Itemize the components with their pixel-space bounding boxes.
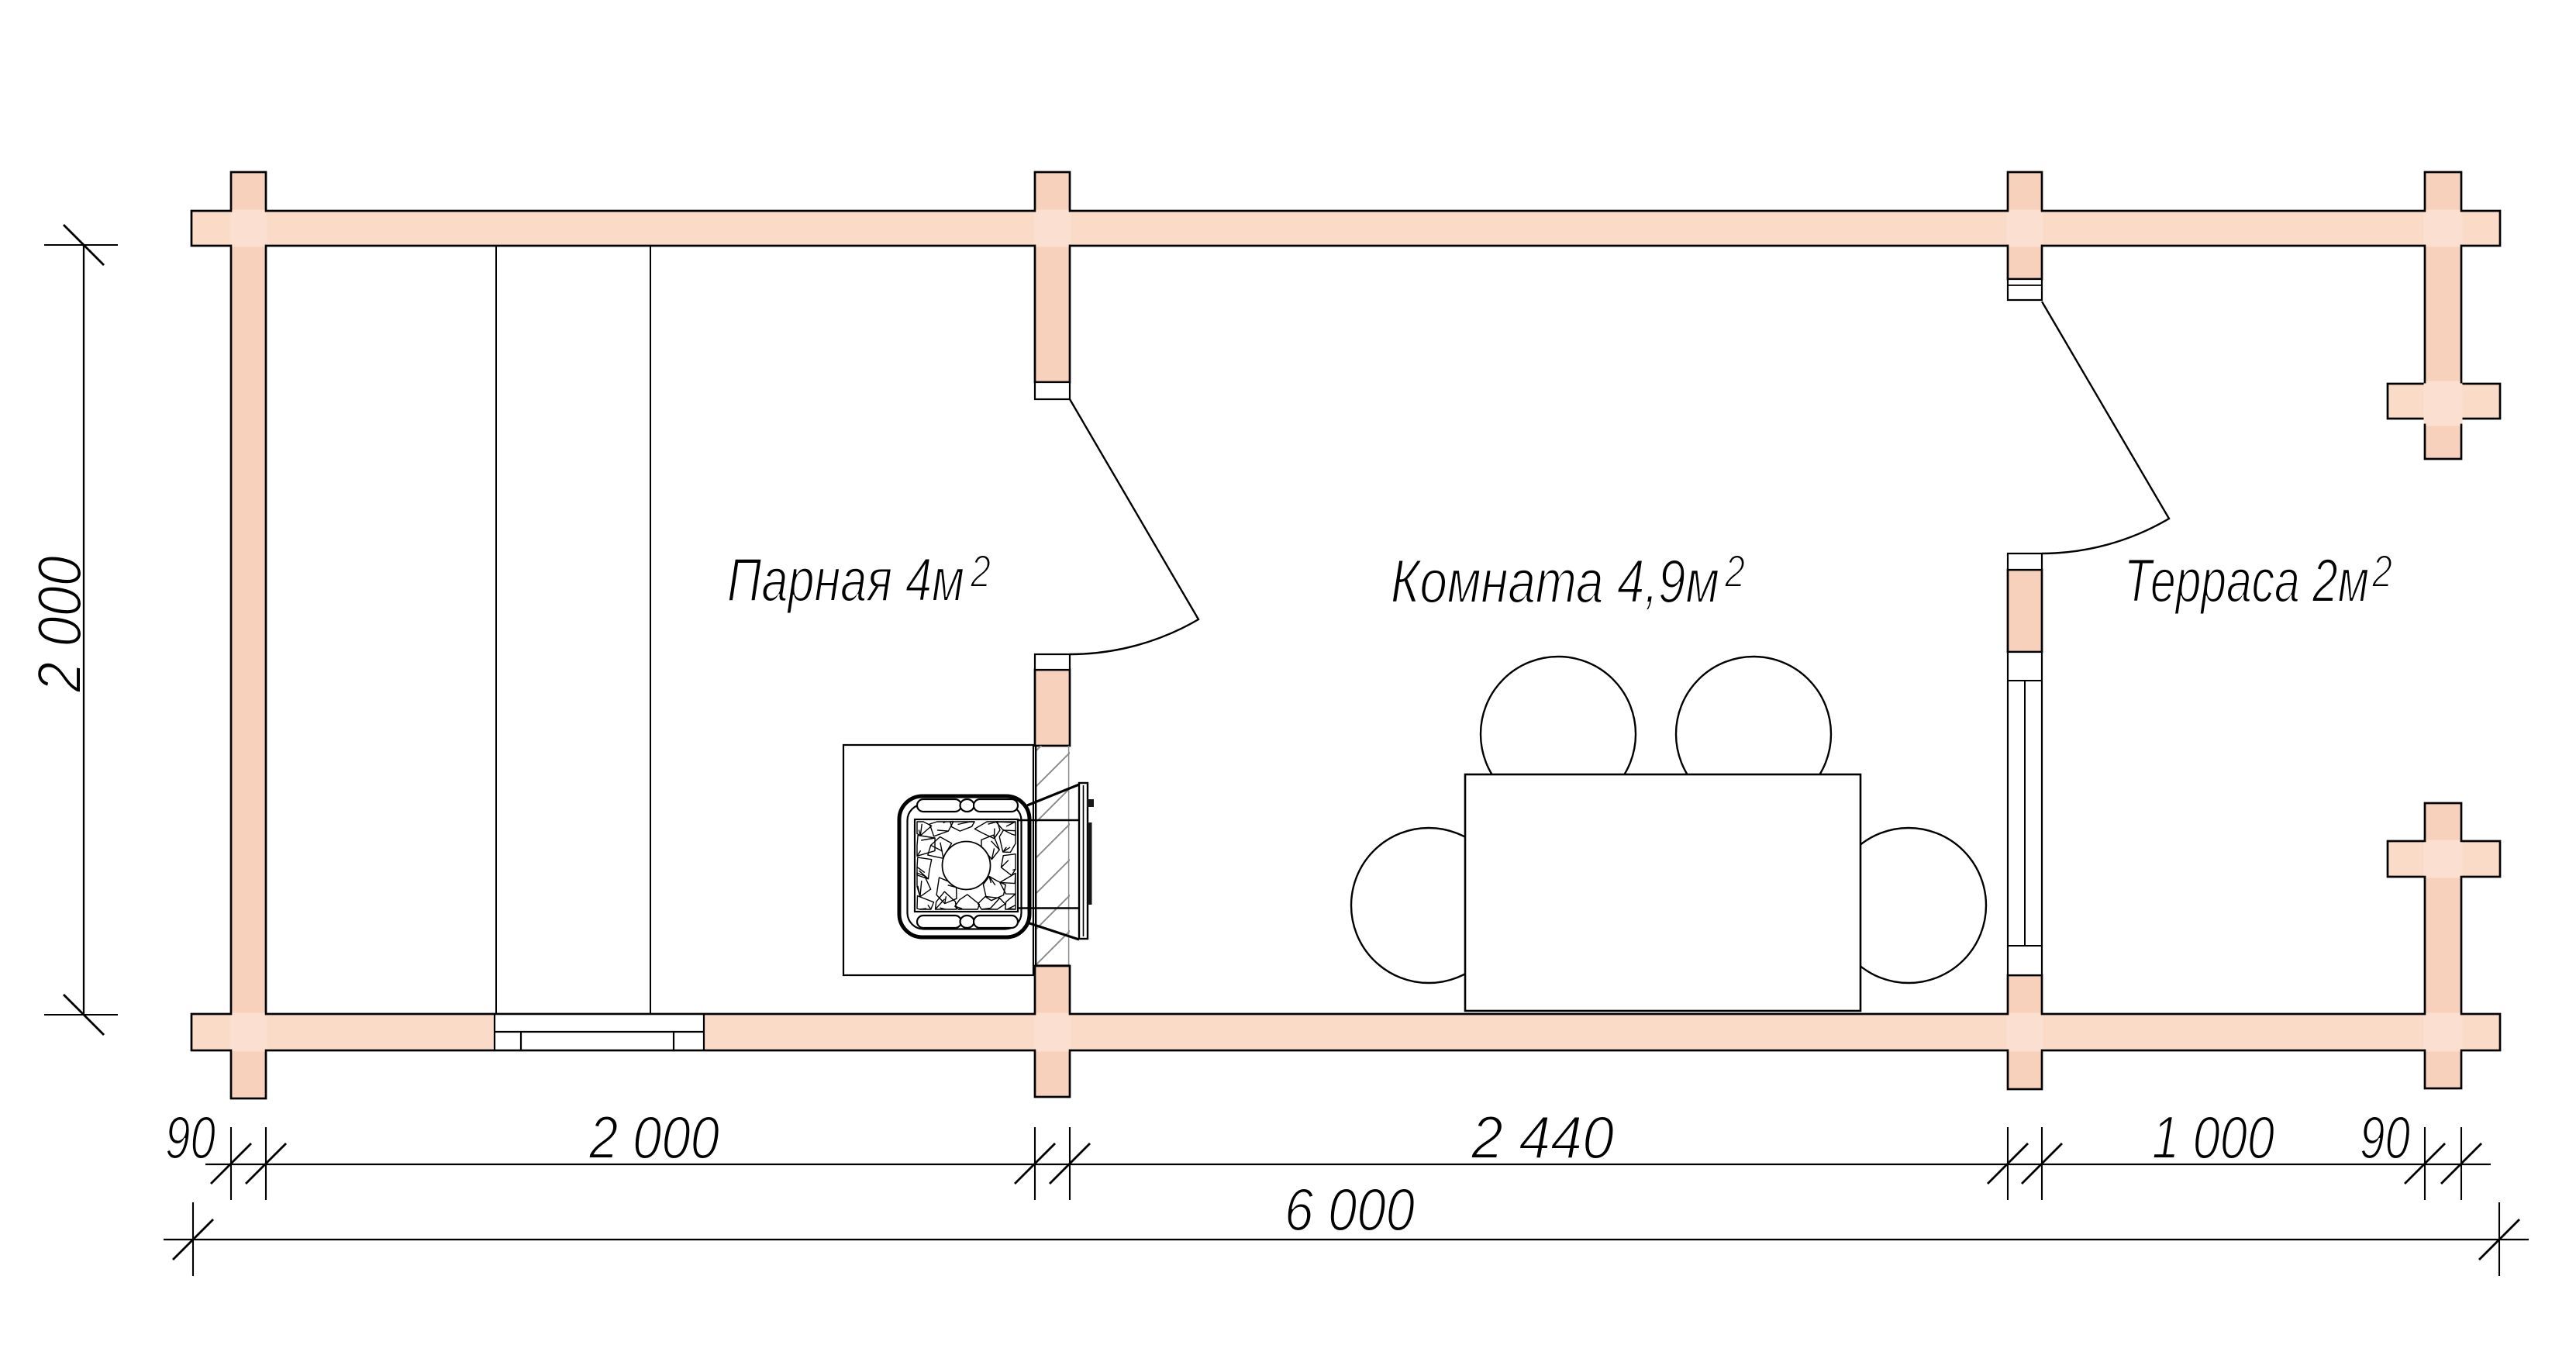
svg-text:6 000: 6 000 (1285, 1175, 1415, 1243)
svg-text:2: 2 (2371, 547, 2392, 597)
svg-text:Комната 4,9м: Комната 4,9м (1391, 547, 1719, 616)
svg-text:90: 90 (165, 1103, 216, 1171)
svg-text:Парная 4м: Парная 4м (727, 545, 964, 614)
svg-text:1 000: 1 000 (2152, 1103, 2274, 1171)
svg-text:2: 2 (970, 547, 991, 597)
svg-text:2: 2 (1724, 547, 1745, 597)
svg-text:Терраса 2м: Терраса 2м (2124, 546, 2369, 615)
svg-text:2 440: 2 440 (1471, 1103, 1614, 1171)
svg-text:2 000: 2 000 (25, 556, 94, 693)
svg-text:90: 90 (2360, 1103, 2410, 1171)
svg-text:2 000: 2 000 (588, 1103, 719, 1171)
